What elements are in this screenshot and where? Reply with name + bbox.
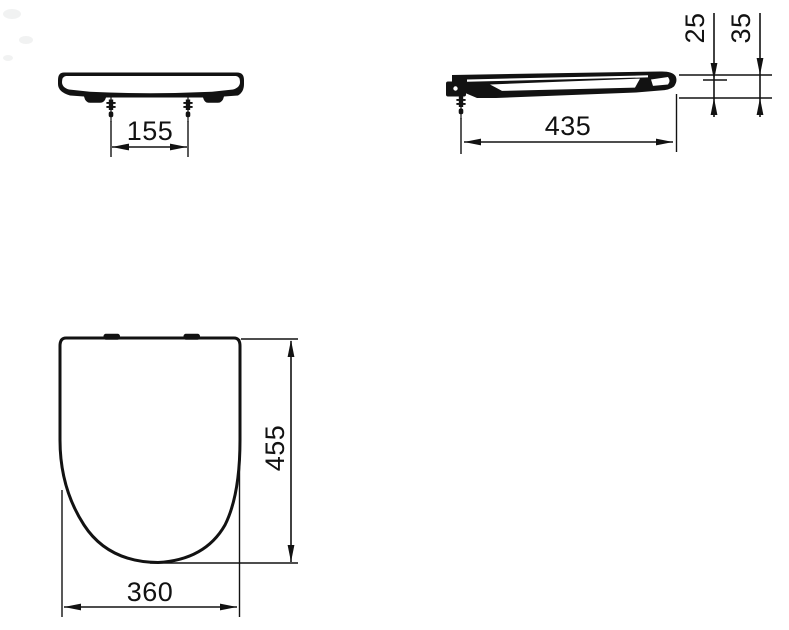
front-seat-face [62, 76, 240, 93]
technical-drawing: 155 435 [0, 0, 789, 630]
dimension-label-455: 455 [260, 425, 290, 472]
dimension-length: 435 [461, 94, 677, 154]
height-reference-lines [679, 75, 772, 98]
dimension-width: 360 [62, 490, 237, 617]
drawing-canvas: 155 435 [0, 0, 789, 630]
front-left-bolt [106, 96, 115, 122]
plan-view: 455 360 [60, 334, 298, 617]
dimension-seat-thickness: 25 [680, 12, 717, 117]
dimension-label-360: 360 [127, 577, 174, 607]
dimension-overall-height: 35 [726, 12, 763, 117]
dimension-depth: 455 [150, 339, 298, 617]
scan-artifacts [3, 9, 33, 61]
dimension-label-155: 155 [127, 116, 174, 146]
dimension-bolt-spacing: 155 [111, 116, 188, 157]
plan-seat-outline [60, 338, 240, 563]
dimension-label-435: 435 [545, 111, 592, 141]
front-view: 155 [58, 73, 244, 158]
side-hinge-pin [453, 86, 457, 90]
dimension-label-35: 35 [726, 12, 756, 43]
side-view: 435 25 35 [446, 12, 772, 154]
front-right-bolt [183, 96, 192, 122]
dimension-label-25: 25 [680, 12, 710, 43]
side-bolt [456, 93, 465, 119]
